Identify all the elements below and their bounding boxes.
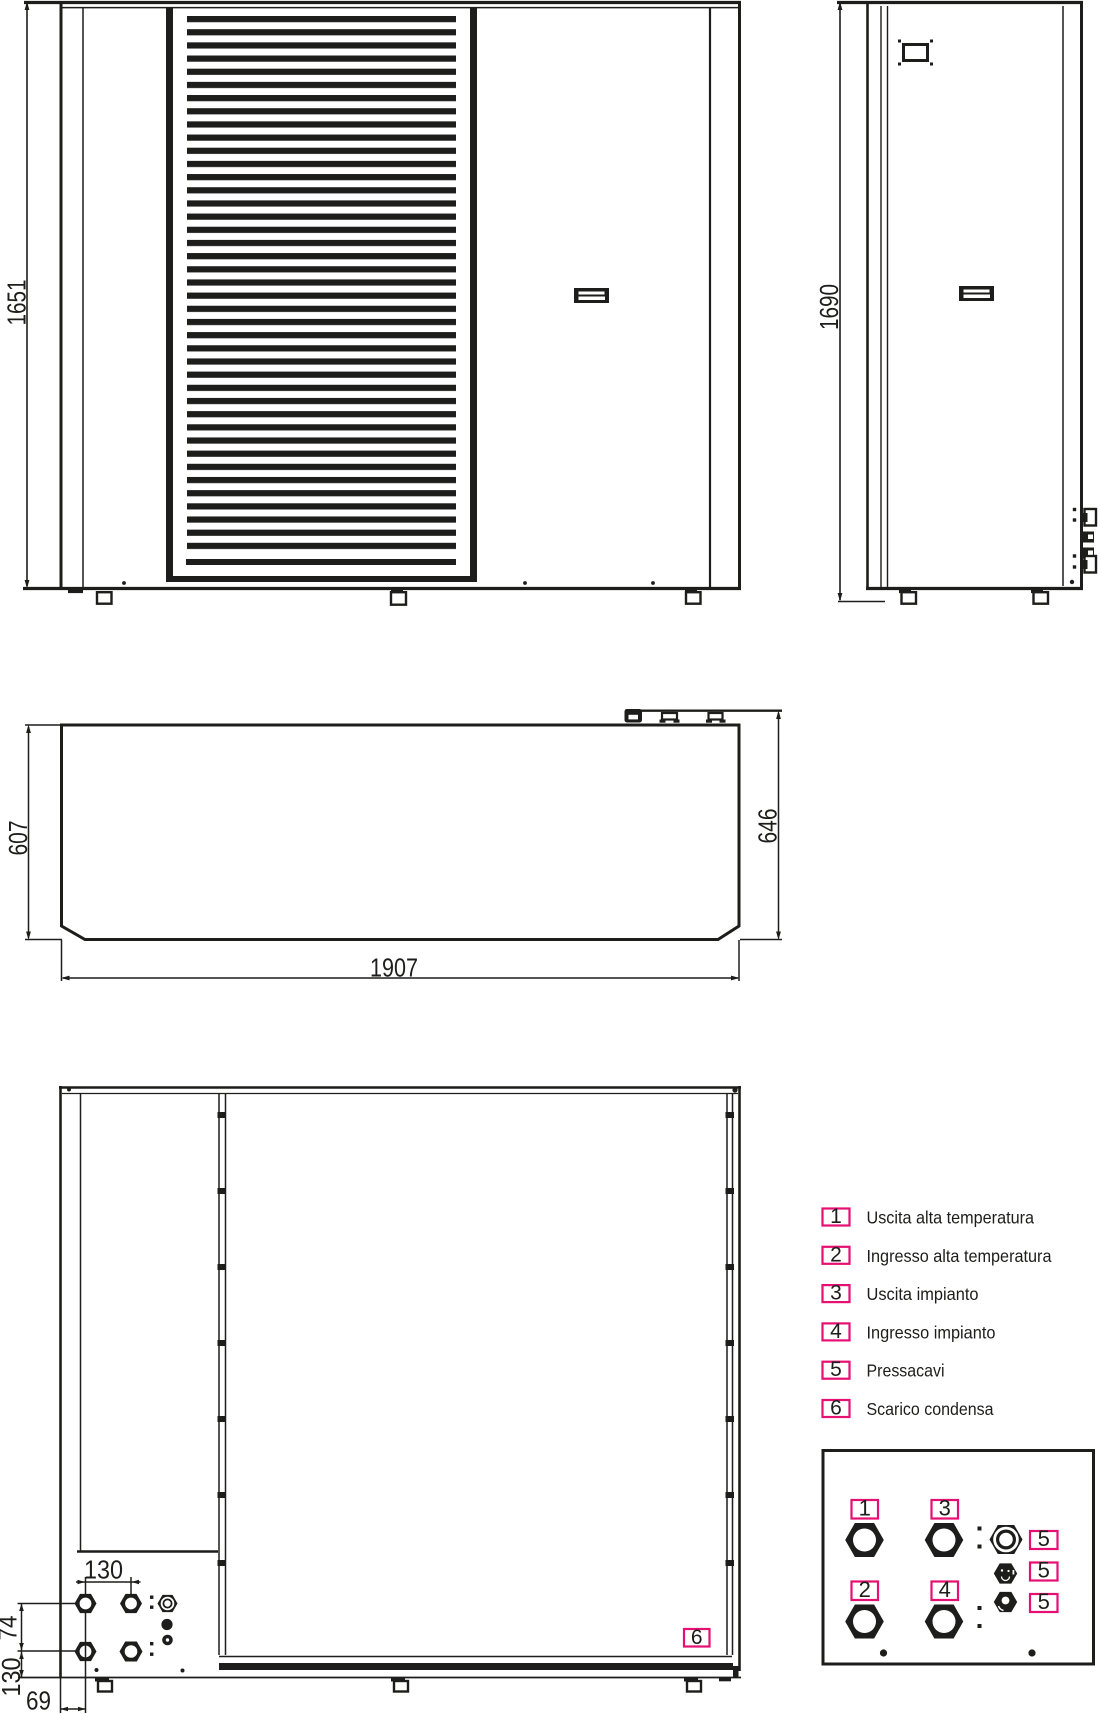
svg-text:130: 130 [0,1658,26,1697]
svg-text:6: 6 [830,1397,842,1420]
svg-text:5: 5 [1038,1589,1050,1614]
svg-text:1: 1 [859,1496,871,1521]
svg-text:607: 607 [3,821,33,856]
svg-text:Ingresso alta temperatura: Ingresso alta temperatura [867,1246,1052,1266]
svg-text:3: 3 [939,1496,951,1521]
svg-text:74: 74 [0,1616,23,1641]
svg-text:5: 5 [830,1358,842,1381]
svg-text:6: 6 [691,1626,703,1649]
svg-text:1690: 1690 [814,284,844,330]
svg-text:646: 646 [753,809,783,844]
svg-text:Uscita impianto: Uscita impianto [867,1284,979,1304]
svg-text:69: 69 [26,1686,51,1714]
svg-text:5: 5 [1038,1526,1050,1551]
svg-text:Scarico condensa: Scarico condensa [867,1399,994,1419]
svg-text:130: 130 [84,1555,123,1585]
svg-text:3: 3 [830,1282,842,1305]
svg-text:2: 2 [830,1243,842,1266]
svg-text:Pressacavi: Pressacavi [867,1361,945,1381]
svg-text:1907: 1907 [370,953,418,983]
svg-text:Ingresso impianto: Ingresso impianto [867,1322,996,1342]
svg-text:1: 1 [830,1205,842,1228]
svg-text:5: 5 [1038,1558,1050,1583]
svg-text:4: 4 [939,1577,951,1602]
svg-text:Uscita alta temperatura: Uscita alta temperatura [867,1208,1035,1228]
svg-text:4: 4 [830,1320,842,1343]
svg-text:2: 2 [859,1577,871,1602]
svg-text:1651: 1651 [2,280,32,326]
